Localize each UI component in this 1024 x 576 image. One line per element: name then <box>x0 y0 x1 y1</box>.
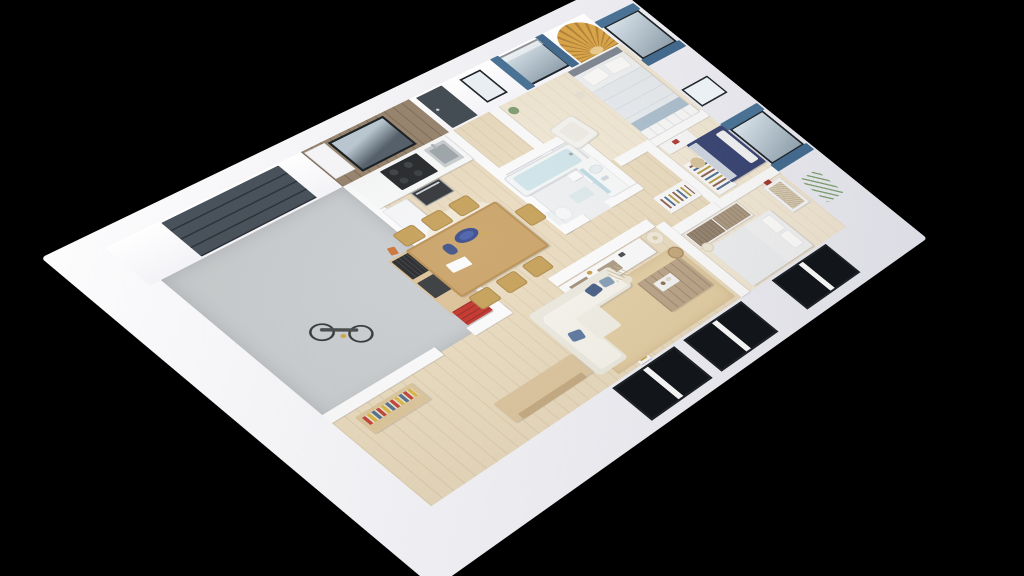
canvas-background <box>0 0 1024 576</box>
floor-plan-3d <box>105 10 860 520</box>
